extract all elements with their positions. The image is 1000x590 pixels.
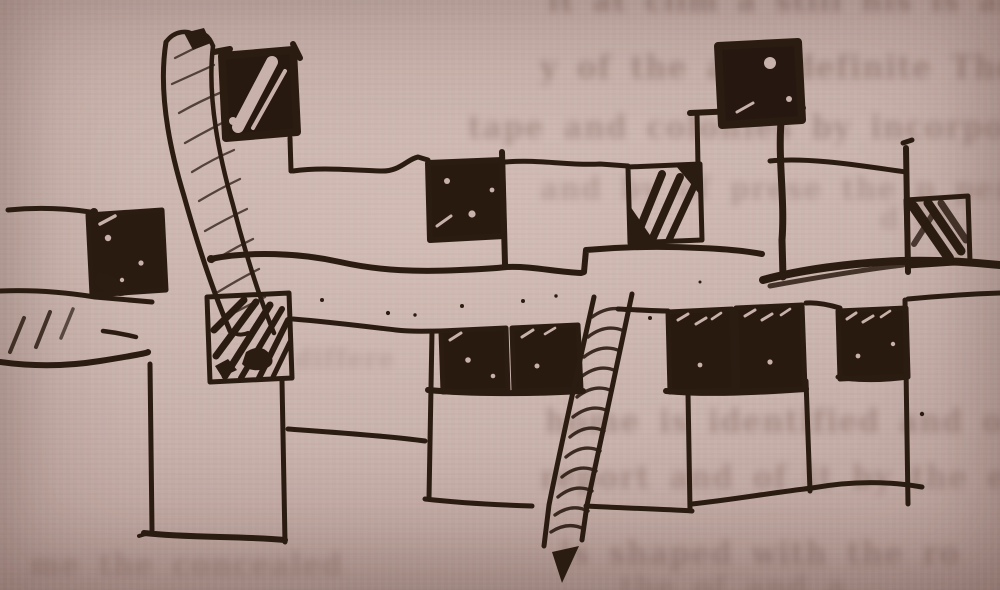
lower-window-i: [668, 309, 734, 392]
tower-top-window: [214, 44, 300, 138]
right-wing-shadow-edge: [763, 261, 1000, 280]
right-wing-window: [906, 196, 970, 266]
room-c: [692, 381, 812, 504]
sketch-plan-drawing: [0, 0, 1000, 590]
path-arrow-tip: [552, 546, 579, 583]
lower-wing: [207, 293, 1000, 393]
book-page: it at clim a still his is and for the mo…: [0, 0, 1000, 590]
room-connector-wall: [288, 429, 425, 441]
left-wing: [0, 208, 166, 302]
upper-center-window: [428, 160, 504, 240]
left-path: [0, 309, 148, 365]
street-bottom-edge: [293, 319, 440, 331]
lower-window-k: [838, 308, 908, 379]
room-a: [139, 364, 285, 542]
lower-window-h: [512, 325, 581, 391]
upper-striped-window: [628, 164, 702, 243]
lower-window-g: [441, 328, 508, 392]
lower-window-j: [736, 305, 805, 391]
right-wing: [763, 140, 1000, 286]
street-top-edge: [210, 247, 762, 273]
